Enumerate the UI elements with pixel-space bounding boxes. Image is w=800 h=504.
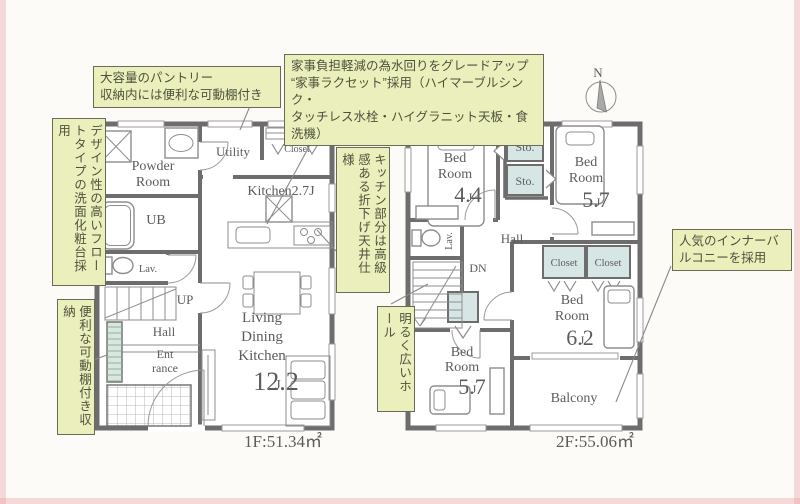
label-powder-2: Room (136, 175, 170, 190)
label-ldk-1: Living (242, 310, 282, 326)
label-bed3-unit: J (580, 333, 585, 347)
window (329, 268, 335, 314)
label-bed3-2: Room (555, 309, 589, 324)
compass-n-label: N (593, 65, 603, 80)
note-vanity: デザイン性の高いフロートタイプの洗面化粧台採用 (52, 118, 106, 286)
label-lav-1f: Lav. (139, 264, 157, 275)
floor-plan-1f: Powder Room Utility Closet Kitchen2.7J U… (94, 121, 335, 451)
area-label-2f: 2F:55.06㎡ (556, 432, 634, 451)
note-movable-shelf-storage: 便利な可動棚付き収納 (57, 299, 95, 435)
compass-north-icon: N (586, 65, 616, 112)
dresser-icon (592, 222, 634, 235)
label-up: UP (177, 292, 194, 307)
label-hall-2f: Hall (501, 231, 524, 246)
label-bed1-2: Room (438, 167, 472, 182)
label-entrance-2: rance (152, 361, 178, 375)
note-kitchen-ceiling: キッチン部分は高級感ある折下げ天井仕様 (336, 147, 390, 293)
window (329, 184, 335, 212)
label-ldk-unit: J (275, 378, 281, 393)
window (532, 353, 618, 359)
toilet-icon (412, 230, 440, 246)
dresser-icon (490, 368, 504, 414)
window (637, 146, 643, 194)
note-bright-hall: 明るく広いホール (377, 306, 415, 412)
label-closet-2: Closet (595, 258, 622, 269)
window (637, 374, 643, 418)
label-ub: UB (146, 213, 165, 228)
label-bed4-1: Bed (451, 345, 474, 360)
label-bed4-2: Room (445, 360, 479, 375)
label-bed2-1: Bed (575, 155, 598, 170)
label-closet-1: Closet (551, 258, 578, 269)
label-dn: DN (469, 261, 487, 275)
note-kitchen-upgrade: 家事負担軽減の為水回りをグレードアップ “家事ラクセット”採用（ハイマーブルシン… (284, 54, 544, 146)
label-bed2-unit: J (596, 195, 601, 209)
label-bed1-unit: J (468, 190, 473, 204)
label-sto-2: Sto. (515, 174, 534, 188)
area-label-1f: 1F:51.34㎡ (244, 432, 322, 451)
label-bed1-1: Bed (444, 151, 467, 166)
label-ldk-2: Dining (241, 329, 283, 345)
label-bed3-1: Bed (561, 293, 584, 308)
label-bed2-2: Room (569, 171, 603, 186)
floorplan-page: Powder Room Utility Closet Kitchen2.7J U… (0, 0, 800, 504)
label-powder-1: Powder (132, 159, 175, 174)
window (436, 425, 486, 431)
window (208, 121, 252, 127)
label-utility: Utility (216, 144, 250, 159)
window (118, 121, 164, 127)
toilet-icon (103, 257, 133, 274)
vanity-sink-icon (165, 128, 198, 158)
shoe-storage-shelves (107, 322, 122, 382)
window (405, 148, 411, 192)
label-entrance-1: Ent (157, 347, 174, 361)
floor-plan-2f: Bed Room 4.4 J Sto. Sto. Bed Room 5.7 J … (405, 121, 643, 451)
entrance-tile (107, 385, 191, 426)
label-hall-1f: Hall (153, 324, 176, 339)
label-bed4-unit: J (472, 382, 477, 396)
window (637, 298, 643, 342)
note-inner-balcony: 人気のインナーバルコニーを採用 (672, 229, 792, 271)
dresser-icon (416, 206, 458, 219)
label-ldk-3: Kitchen (238, 348, 286, 364)
label-balcony: Balcony (551, 391, 598, 406)
bed-icon (604, 286, 634, 348)
label-lav-2f: Lav. (444, 232, 455, 249)
note-pantry: 大容量のパントリー 収納内には便利な可動棚付き (93, 66, 281, 108)
window (530, 425, 622, 431)
